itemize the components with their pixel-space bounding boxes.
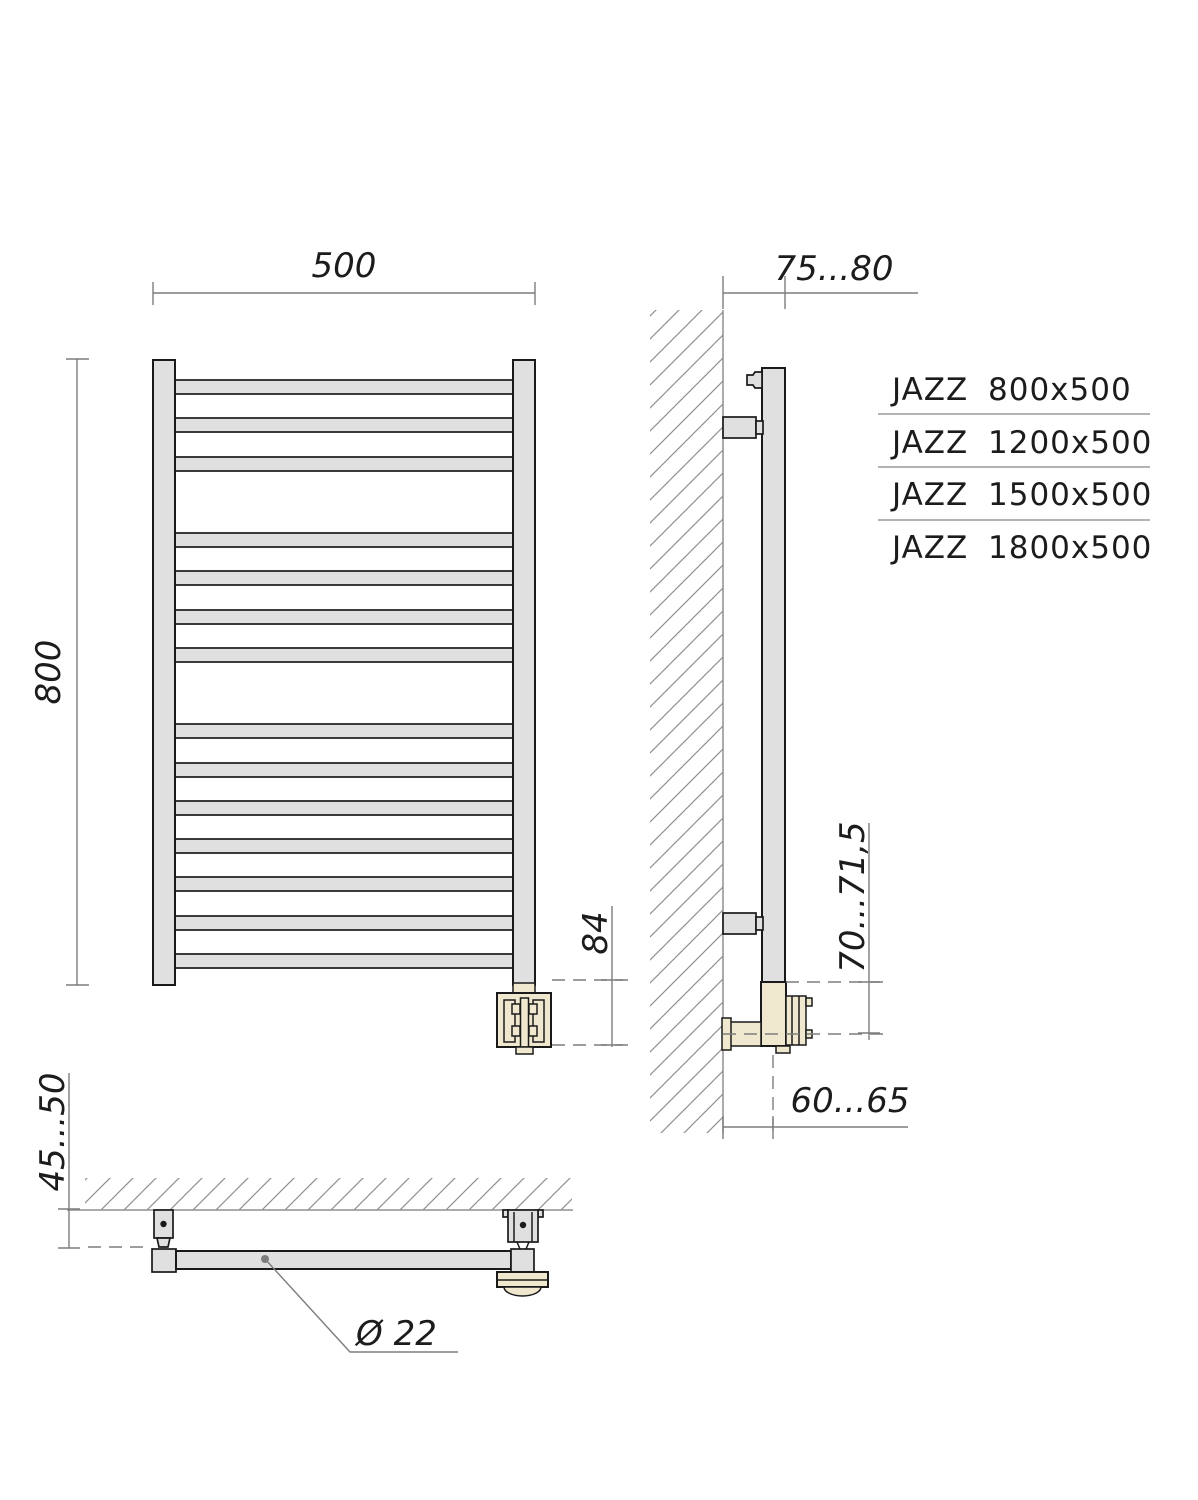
- top-bracket-left: [154, 1210, 173, 1247]
- heating-element-top: [497, 1272, 548, 1296]
- tube-end-cap-left: [152, 1249, 176, 1272]
- rung: [171, 457, 517, 471]
- wall-offset-label: 75...80: [775, 249, 894, 289]
- connector-wall-offset-dimension: 60...65: [723, 1055, 909, 1139]
- model-row-size: 1500x500: [988, 477, 1152, 513]
- rung: [171, 648, 517, 662]
- rung: [171, 533, 517, 547]
- front-width-label: 500: [312, 246, 377, 286]
- right-post: [513, 360, 535, 985]
- wall-offset-dimension: 75...80: [723, 249, 918, 309]
- rung: [171, 763, 517, 777]
- connector-height-label: 70...71,5: [833, 821, 873, 972]
- front-height-label: 800: [29, 640, 69, 705]
- model-row-size: 800x500: [988, 372, 1132, 408]
- wall-gap-dimension: 45...50: [33, 1073, 80, 1248]
- connector-wall-offset-label: 60...65: [791, 1081, 910, 1121]
- model-row-name: JAZZ: [890, 477, 968, 513]
- top-bracket-right: [503, 1210, 543, 1249]
- rung: [171, 839, 517, 853]
- rung: [171, 877, 517, 891]
- model-row-name: JAZZ: [890, 372, 968, 408]
- heater-offset-label: 84: [576, 911, 616, 954]
- model-row-size: 1800x500: [988, 530, 1152, 566]
- wall-hatch-side: [650, 310, 723, 1133]
- wall-bracket-lower: [723, 913, 763, 934]
- side-view: 70...71,5 60...65 75...80: [650, 249, 918, 1139]
- rung: [171, 954, 517, 968]
- left-post: [153, 360, 175, 985]
- heating-element-front: [497, 983, 551, 1054]
- wall-gap-label: 45...50: [33, 1073, 73, 1192]
- model-row-name: JAZZ: [890, 425, 968, 461]
- model-row-size: 1200x500: [988, 425, 1152, 461]
- rung: [171, 418, 517, 432]
- rung: [171, 801, 517, 815]
- rungs: [171, 380, 517, 968]
- front-width-dimension: 500: [153, 246, 535, 305]
- wall-hatch-top: [85, 1178, 572, 1210]
- rung: [171, 724, 517, 738]
- air-vent-valve: [747, 372, 762, 388]
- rung: [171, 571, 517, 585]
- rung: [171, 610, 517, 624]
- heater-offset-dimension: 84: [552, 906, 630, 1047]
- tube-diameter-label: Ø 22: [354, 1314, 437, 1354]
- side-post: [762, 368, 785, 982]
- model-row-name: JAZZ: [890, 530, 968, 566]
- tube-top-view: [176, 1251, 511, 1269]
- rung: [171, 380, 517, 394]
- drawing-canvas: 500 800 84: [0, 0, 1198, 1500]
- front-height-dimension: 800: [29, 359, 89, 985]
- heating-element-side: [722, 982, 812, 1053]
- models-table: JAZZ 800x500 JAZZ 1200x500 JAZZ 1500x500…: [878, 372, 1152, 566]
- wall-bracket-upper: [723, 417, 763, 438]
- front-view: 500 800 84: [29, 246, 630, 1054]
- tube-end-cap-right: [511, 1249, 534, 1272]
- rung: [171, 916, 517, 930]
- top-view: 45...50 Ø 22: [33, 1073, 573, 1354]
